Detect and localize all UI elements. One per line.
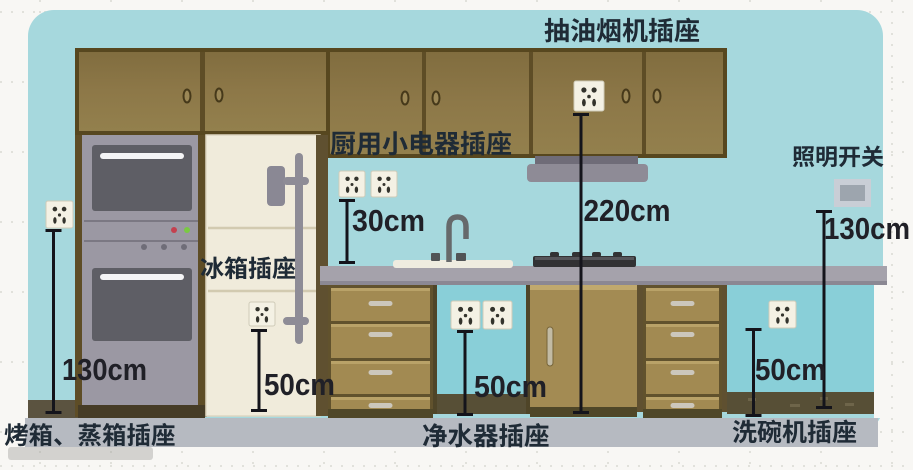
svg-text:50cm: 50cm — [264, 367, 335, 402]
svg-text:130cm: 130cm — [824, 211, 910, 246]
svg-text:130cm: 130cm — [62, 352, 147, 387]
svg-text:50cm: 50cm — [474, 369, 547, 404]
svg-text:30cm: 30cm — [352, 203, 425, 238]
svg-text:50cm: 50cm — [755, 352, 826, 387]
svg-text:220cm: 220cm — [584, 193, 671, 228]
